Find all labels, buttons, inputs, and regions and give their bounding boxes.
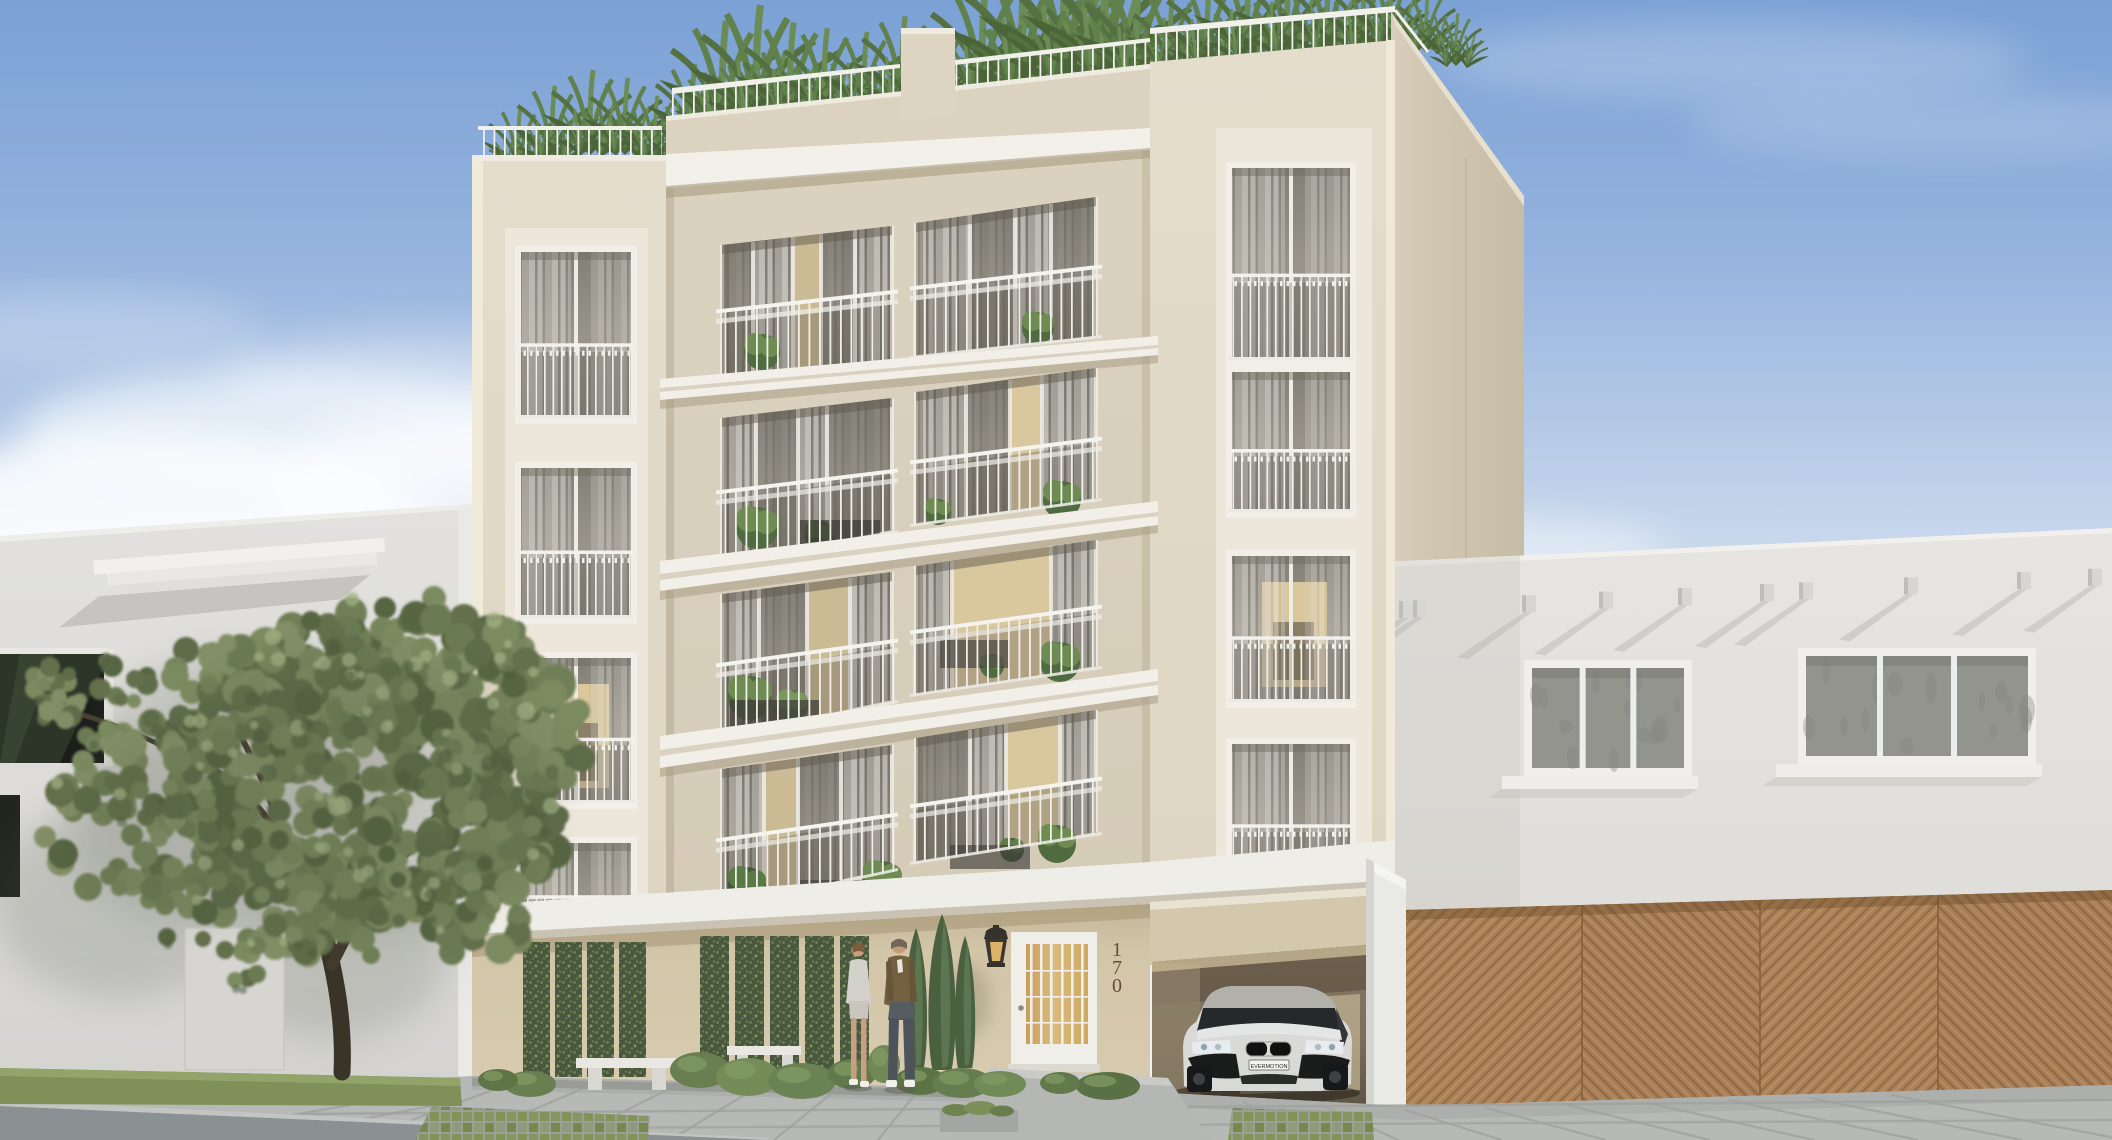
svg-text:EVERMOTION: EVERMOTION [1251,1064,1288,1070]
svg-text:0: 0 [1112,975,1122,997]
